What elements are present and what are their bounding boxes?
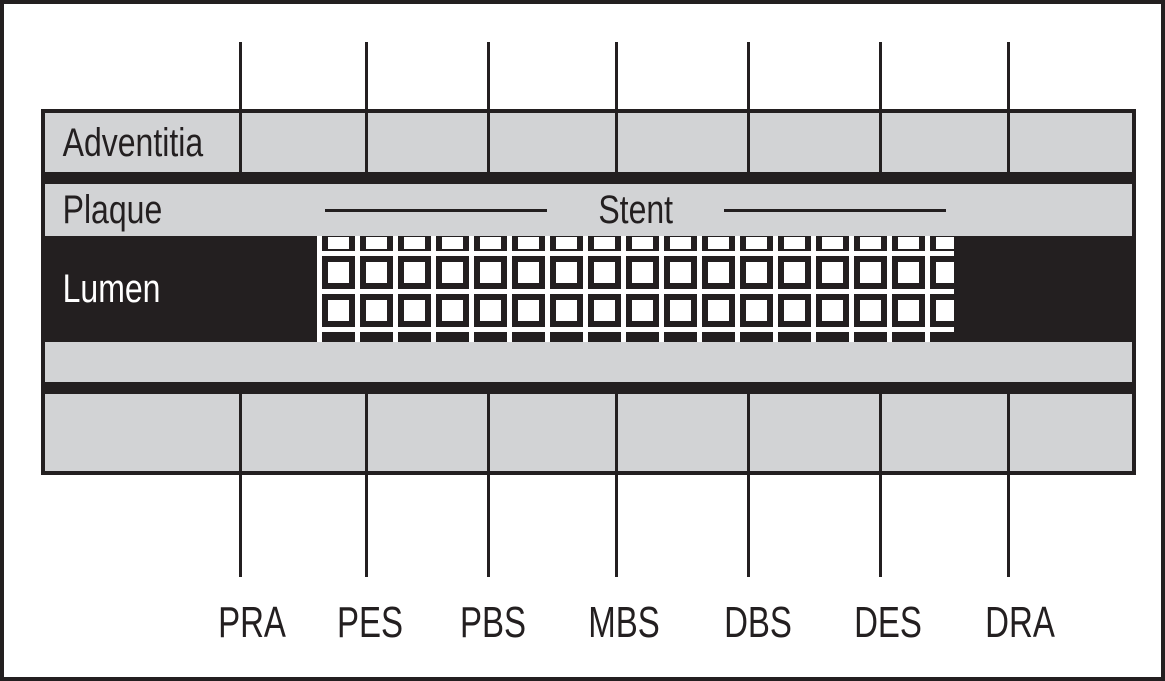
stent-left-line bbox=[325, 209, 547, 212]
mesh-cell-window bbox=[632, 300, 653, 321]
mesh-cell-window bbox=[708, 237, 729, 249]
marker-line-top-pbs bbox=[487, 42, 490, 175]
marker-line-bottom-pbs bbox=[487, 384, 490, 577]
mesh-strut-horizontal bbox=[317, 327, 954, 332]
marker-label-des-text: DES bbox=[854, 601, 922, 645]
mesh-cell-window bbox=[936, 300, 954, 321]
mesh-cell-window bbox=[708, 262, 729, 283]
mesh-cell-window bbox=[632, 237, 653, 249]
mesh-cell-window bbox=[860, 300, 881, 321]
marker-label-pbs: PBS bbox=[449, 601, 537, 645]
mesh-cell-window bbox=[708, 300, 729, 321]
mesh-cell-window bbox=[328, 237, 349, 249]
mesh-cell-window bbox=[632, 262, 653, 283]
lumen-band: Lumen bbox=[45, 236, 1132, 342]
marker-label-dbs: DBS bbox=[713, 601, 803, 645]
lower-wall-band bbox=[45, 342, 1132, 382]
adventitia-band: Adventitia bbox=[45, 113, 1132, 172]
mesh-cell-window bbox=[442, 237, 463, 249]
marker-line-bottom-des bbox=[879, 384, 882, 577]
marker-label-pbs-text: PBS bbox=[460, 601, 526, 645]
marker-label-des: DES bbox=[843, 601, 933, 645]
marker-label-pes: PES bbox=[326, 601, 414, 645]
mesh-cell-window bbox=[822, 237, 843, 249]
marker-line-top-des bbox=[879, 42, 882, 175]
mesh-cell-window bbox=[670, 262, 691, 283]
mesh-strut-horizontal bbox=[317, 289, 954, 294]
marker-line-top-pes bbox=[365, 42, 368, 175]
marker-label-pra: PRA bbox=[207, 601, 297, 645]
stent-mesh bbox=[317, 236, 954, 342]
mesh-cell-window bbox=[328, 300, 349, 321]
stent-label: Stent bbox=[598, 190, 673, 230]
mesh-cell-window bbox=[670, 300, 691, 321]
plaque-band: Plaque Stent bbox=[45, 184, 1132, 236]
mesh-cell-window bbox=[366, 262, 387, 283]
marker-label-dbs-text: DBS bbox=[724, 601, 792, 645]
plaque-label: Plaque bbox=[45, 190, 162, 230]
marker-line-top-pra bbox=[239, 42, 242, 175]
mesh-cell-window bbox=[936, 237, 954, 249]
mesh-cell-window bbox=[784, 300, 805, 321]
mesh-strut-horizontal bbox=[317, 251, 954, 256]
mesh-cell-window bbox=[594, 262, 615, 283]
mesh-cell-window bbox=[898, 237, 919, 249]
mesh-cell-window bbox=[556, 262, 577, 283]
mesh-cell-window bbox=[366, 237, 387, 249]
lumen-label: Lumen bbox=[45, 269, 160, 309]
vessel-cross-section: Adventitia Plaque Stent Lumen bbox=[41, 109, 1136, 475]
marker-label-pes-text: PES bbox=[337, 601, 403, 645]
mesh-cell-window bbox=[594, 300, 615, 321]
adventitia-label: Adventitia bbox=[45, 123, 203, 163]
mesh-cell-window bbox=[594, 237, 615, 249]
mesh-cell-window bbox=[898, 262, 919, 283]
marker-label-pra-text: PRA bbox=[218, 601, 286, 645]
mesh-cell-window bbox=[822, 262, 843, 283]
stent-callout: Stent bbox=[317, 184, 954, 236]
marker-line-bottom-dbs bbox=[747, 384, 750, 577]
mesh-cell-window bbox=[328, 262, 349, 283]
mesh-cell-window bbox=[556, 300, 577, 321]
marker-line-bottom-dra bbox=[1007, 384, 1010, 577]
stent-right-line bbox=[724, 209, 946, 212]
mesh-cell-window bbox=[404, 300, 425, 321]
mesh-cell-window bbox=[898, 300, 919, 321]
marker-label-mbs-text: MBS bbox=[588, 601, 660, 645]
lower-adventitia-band bbox=[45, 394, 1132, 471]
marker-line-bottom-pes bbox=[365, 384, 368, 577]
marker-label-dra-text: DRA bbox=[985, 601, 1055, 645]
mesh-cell-window bbox=[746, 237, 767, 249]
mesh-cell-window bbox=[784, 237, 805, 249]
mesh-cell-window bbox=[822, 300, 843, 321]
mesh-cell-window bbox=[860, 262, 881, 283]
marker-label-mbs: MBS bbox=[576, 601, 671, 645]
mesh-cell-window bbox=[442, 300, 463, 321]
marker-line-bottom-mbs bbox=[615, 384, 618, 577]
mesh-cell-window bbox=[480, 262, 501, 283]
mesh-cell-window bbox=[480, 237, 501, 249]
media-divider-bottom bbox=[45, 382, 1132, 394]
mesh-cell-window bbox=[480, 300, 501, 321]
marker-line-top-dbs bbox=[747, 42, 750, 175]
mesh-cell-window bbox=[670, 237, 691, 249]
marker-line-top-dra bbox=[1007, 42, 1010, 175]
media-divider-top bbox=[45, 172, 1132, 184]
marker-line-top-mbs bbox=[615, 42, 618, 175]
mesh-cell-window bbox=[556, 237, 577, 249]
mesh-cell-window bbox=[746, 300, 767, 321]
marker-line-bottom-pra bbox=[239, 384, 242, 577]
mesh-cell-window bbox=[518, 237, 539, 249]
mesh-cell-window bbox=[442, 262, 463, 283]
marker-label-dra: DRA bbox=[974, 601, 1067, 645]
mesh-cell-window bbox=[404, 237, 425, 249]
mesh-cell-window bbox=[936, 262, 954, 283]
mesh-cell-window bbox=[518, 300, 539, 321]
mesh-cell-window bbox=[366, 300, 387, 321]
stented-artery-diagram: Adventitia Plaque Stent Lumen PRAPESPBSM… bbox=[0, 0, 1165, 681]
mesh-cell-window bbox=[404, 262, 425, 283]
mesh-cell-window bbox=[518, 262, 539, 283]
mesh-cell-window bbox=[860, 237, 881, 249]
mesh-cell-window bbox=[746, 262, 767, 283]
mesh-cell-window bbox=[784, 262, 805, 283]
